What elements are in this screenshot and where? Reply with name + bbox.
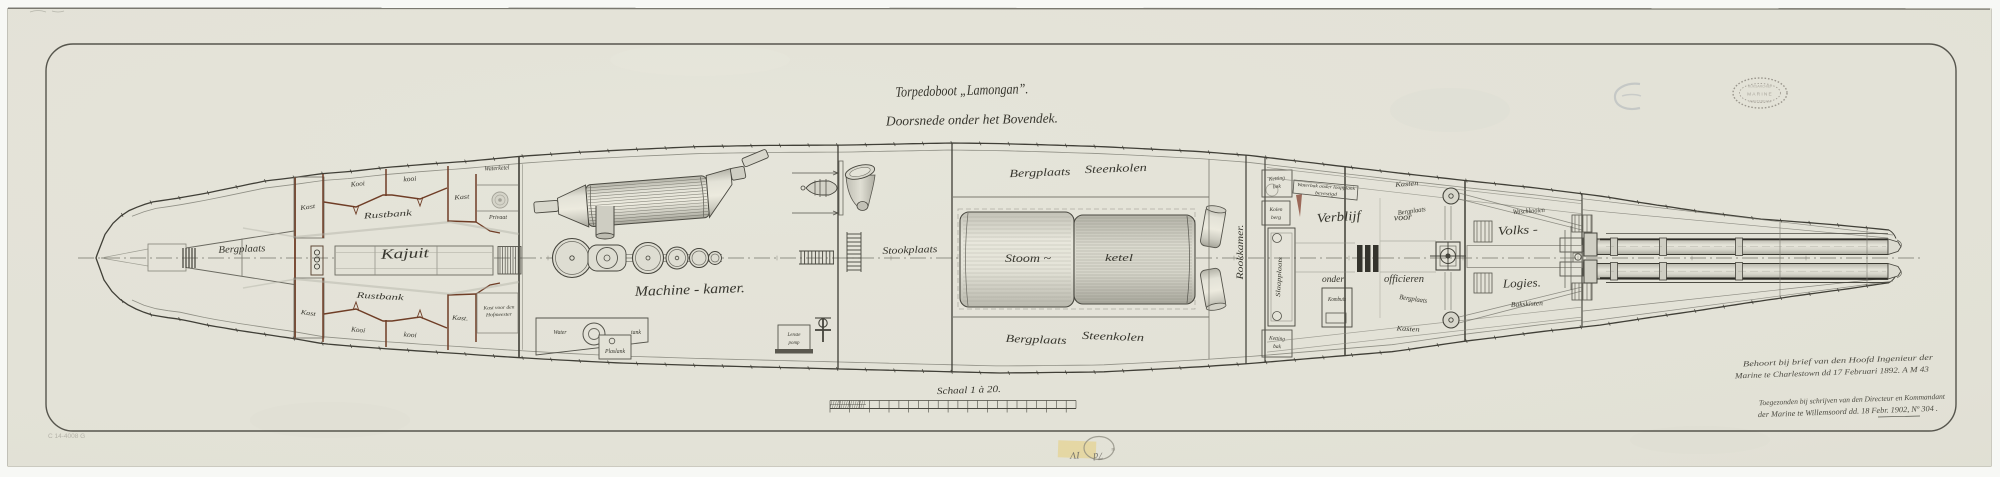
svg-text:C 14-4008 G: C 14-4008 G	[48, 433, 85, 440]
svg-text:Bakskisten: Bakskisten	[1511, 299, 1544, 309]
svg-text:Volks -: Volks -	[1497, 222, 1538, 238]
svg-text:Bergplaats: Bergplaats	[218, 243, 265, 256]
svg-text:Steenkolen: Steenkolen	[1085, 162, 1148, 176]
svg-text:AMSTERDAM: AMSTERDAM	[1749, 100, 1771, 104]
svg-text:Bergplaats: Bergplaats	[1009, 166, 1070, 180]
svg-text:onder: onder	[1322, 274, 1345, 284]
svg-text:Lenste: Lenste	[787, 332, 801, 338]
svg-text:officieren: officieren	[1384, 274, 1424, 285]
svg-text:Kast.: Kast.	[451, 314, 469, 322]
svg-text:Bergplaats: Bergplaats	[1005, 333, 1066, 347]
svg-text:MARINE: MARINE	[1747, 92, 1773, 98]
svg-text:Stookplaats: Stookplaats	[882, 244, 937, 257]
svg-text:Waterketel: Waterketel	[484, 164, 510, 172]
svg-text:RIJKSARCHIEF: RIJKSARCHIEF	[1748, 85, 1773, 89]
svg-text:Privaat: Privaat	[488, 214, 507, 221]
svg-text:ketel: ketel	[1105, 252, 1133, 264]
svg-text:Kombuis: Kombuis	[1327, 297, 1346, 303]
svg-text:Kooi: Kooi	[349, 179, 365, 189]
svg-text:Plaslank: Plaslank	[604, 349, 625, 355]
svg-text:Doorsnede onder het Bovendek.: Doorsnede onder het Bovendek.	[885, 111, 1058, 129]
svg-text:bak: bak	[1273, 344, 1282, 351]
svg-text:Water: Water	[554, 330, 568, 336]
svg-text:Kast: Kast	[453, 193, 470, 201]
svg-text:Kooi: Kooi	[350, 325, 366, 335]
svg-text:berg: berg	[1271, 215, 1281, 221]
svg-text:tank: tank	[631, 330, 641, 336]
svg-text:Logies.: Logies.	[1502, 275, 1542, 290]
svg-text:Hofmeester: Hofmeester	[485, 313, 512, 319]
svg-text:Kajuit: Kajuit	[379, 246, 430, 263]
svg-text:kooi: kooi	[403, 175, 417, 184]
svg-text:kooi: kooi	[403, 331, 417, 340]
svg-text:Stoom ~: Stoom ~	[1005, 251, 1052, 265]
svg-text:pomp: pomp	[788, 340, 800, 346]
svg-text:Steenkolen: Steenkolen	[1082, 330, 1145, 344]
svg-text:Rookkamer.: Rookkamer.	[1235, 225, 1245, 281]
svg-text:Kolen: Kolen	[1269, 207, 1283, 213]
